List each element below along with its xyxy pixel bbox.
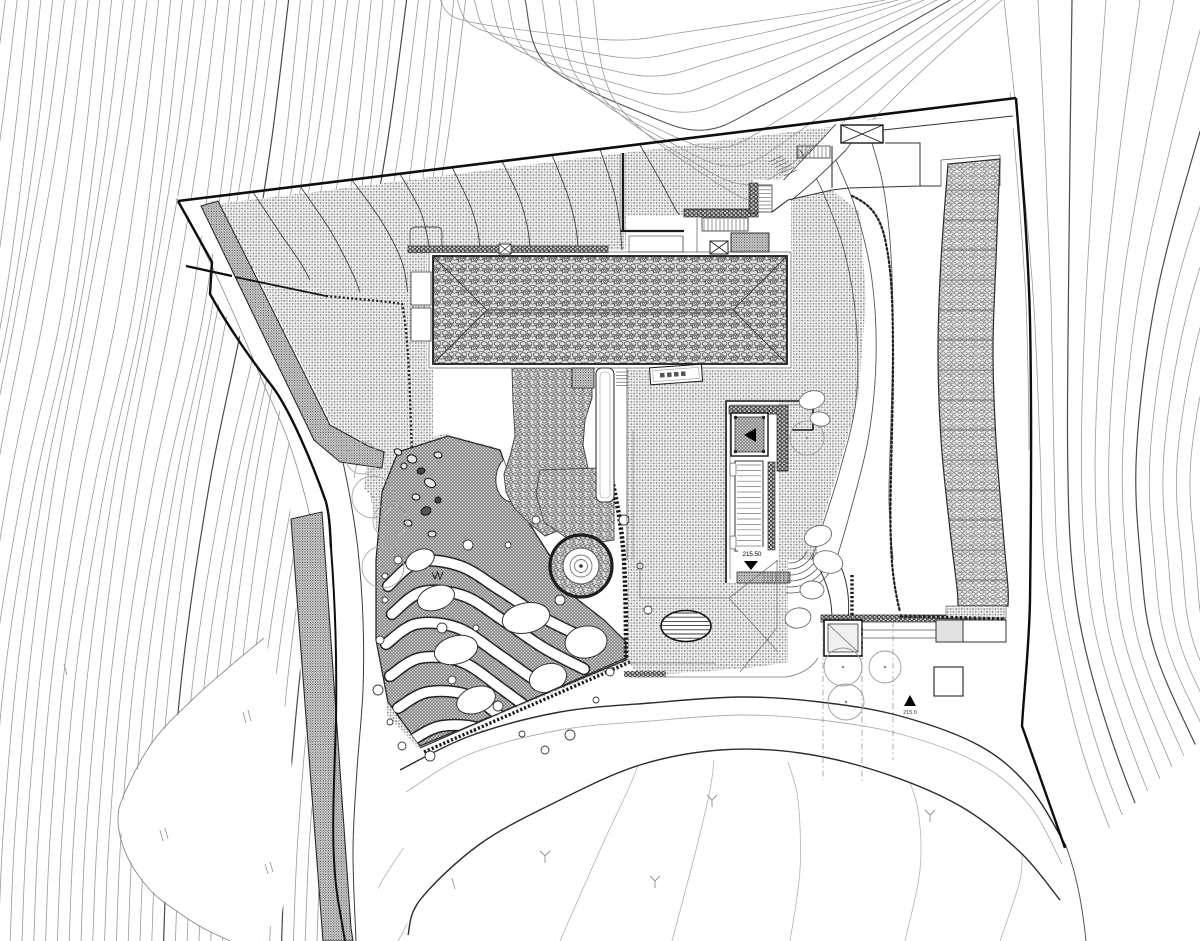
svg-text:215.50: 215.50	[743, 551, 762, 558]
svg-text:215.0: 215.0	[903, 710, 917, 716]
